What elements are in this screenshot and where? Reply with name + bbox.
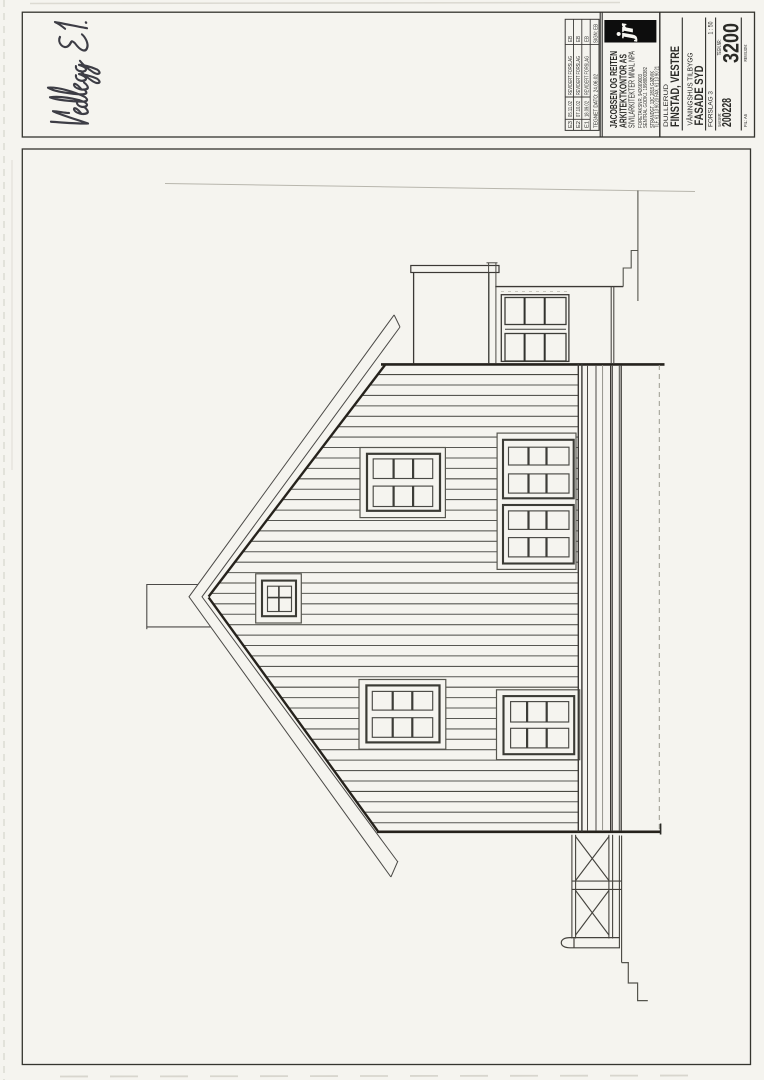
svg-text:TEGNET DATO: 24.06.02: TEGNET DATO: 24.06.02 xyxy=(594,74,600,128)
svg-text:EB: EB xyxy=(576,35,582,42)
svg-text:FORSLAG 3: FORSLAG 3 xyxy=(708,90,714,127)
svg-text:E3: E3 xyxy=(568,121,574,128)
svg-text:EB: EB xyxy=(568,35,574,42)
svg-text:REVIDERT FORSLAG: REVIDERT FORSLAG xyxy=(585,56,591,95)
svg-text:1 : 50: 1 : 50 xyxy=(708,21,714,35)
svg-text:200228: 200228 xyxy=(719,98,734,127)
svg-text:07.10.02: 07.10.02 xyxy=(576,101,582,117)
svg-text:REVIDERT FORSLAG: REVIDERT FORSLAG xyxy=(568,56,574,95)
svg-text:FIL: A5: FIL: A5 xyxy=(743,114,748,127)
svg-text:FASADE SYD: FASADE SYD xyxy=(692,65,706,125)
svg-text:FINSTAD, VESTRE: FINSTAD, VESTRE xyxy=(668,46,682,127)
svg-text:E1: E1 xyxy=(585,121,591,128)
svg-text:E2: E2 xyxy=(576,121,582,128)
svg-text:jr: jr xyxy=(613,23,638,41)
svg-text:EB: EB xyxy=(585,35,591,42)
svg-text:SENTRAL GODKJ. 1998000382: SENTRAL GODKJ. 1998000382 xyxy=(643,67,649,128)
svg-text:REVIDERT FORSLAG: REVIDERT FORSLAG xyxy=(576,56,582,95)
svg-text:18.09.02: 18.09.02 xyxy=(585,101,591,117)
svg-text:REVISJON:: REVISJON: xyxy=(743,45,748,62)
svg-text:SIVILARKITEKTER MNAL NPA: SIVILARKITEKTER MNAL NPA xyxy=(628,51,637,128)
svg-text:05.11.02: 05.11.02 xyxy=(568,101,574,117)
svg-text:3200: 3200 xyxy=(719,23,744,63)
svg-text:SIGN: EB: SIGN: EB xyxy=(594,23,600,43)
